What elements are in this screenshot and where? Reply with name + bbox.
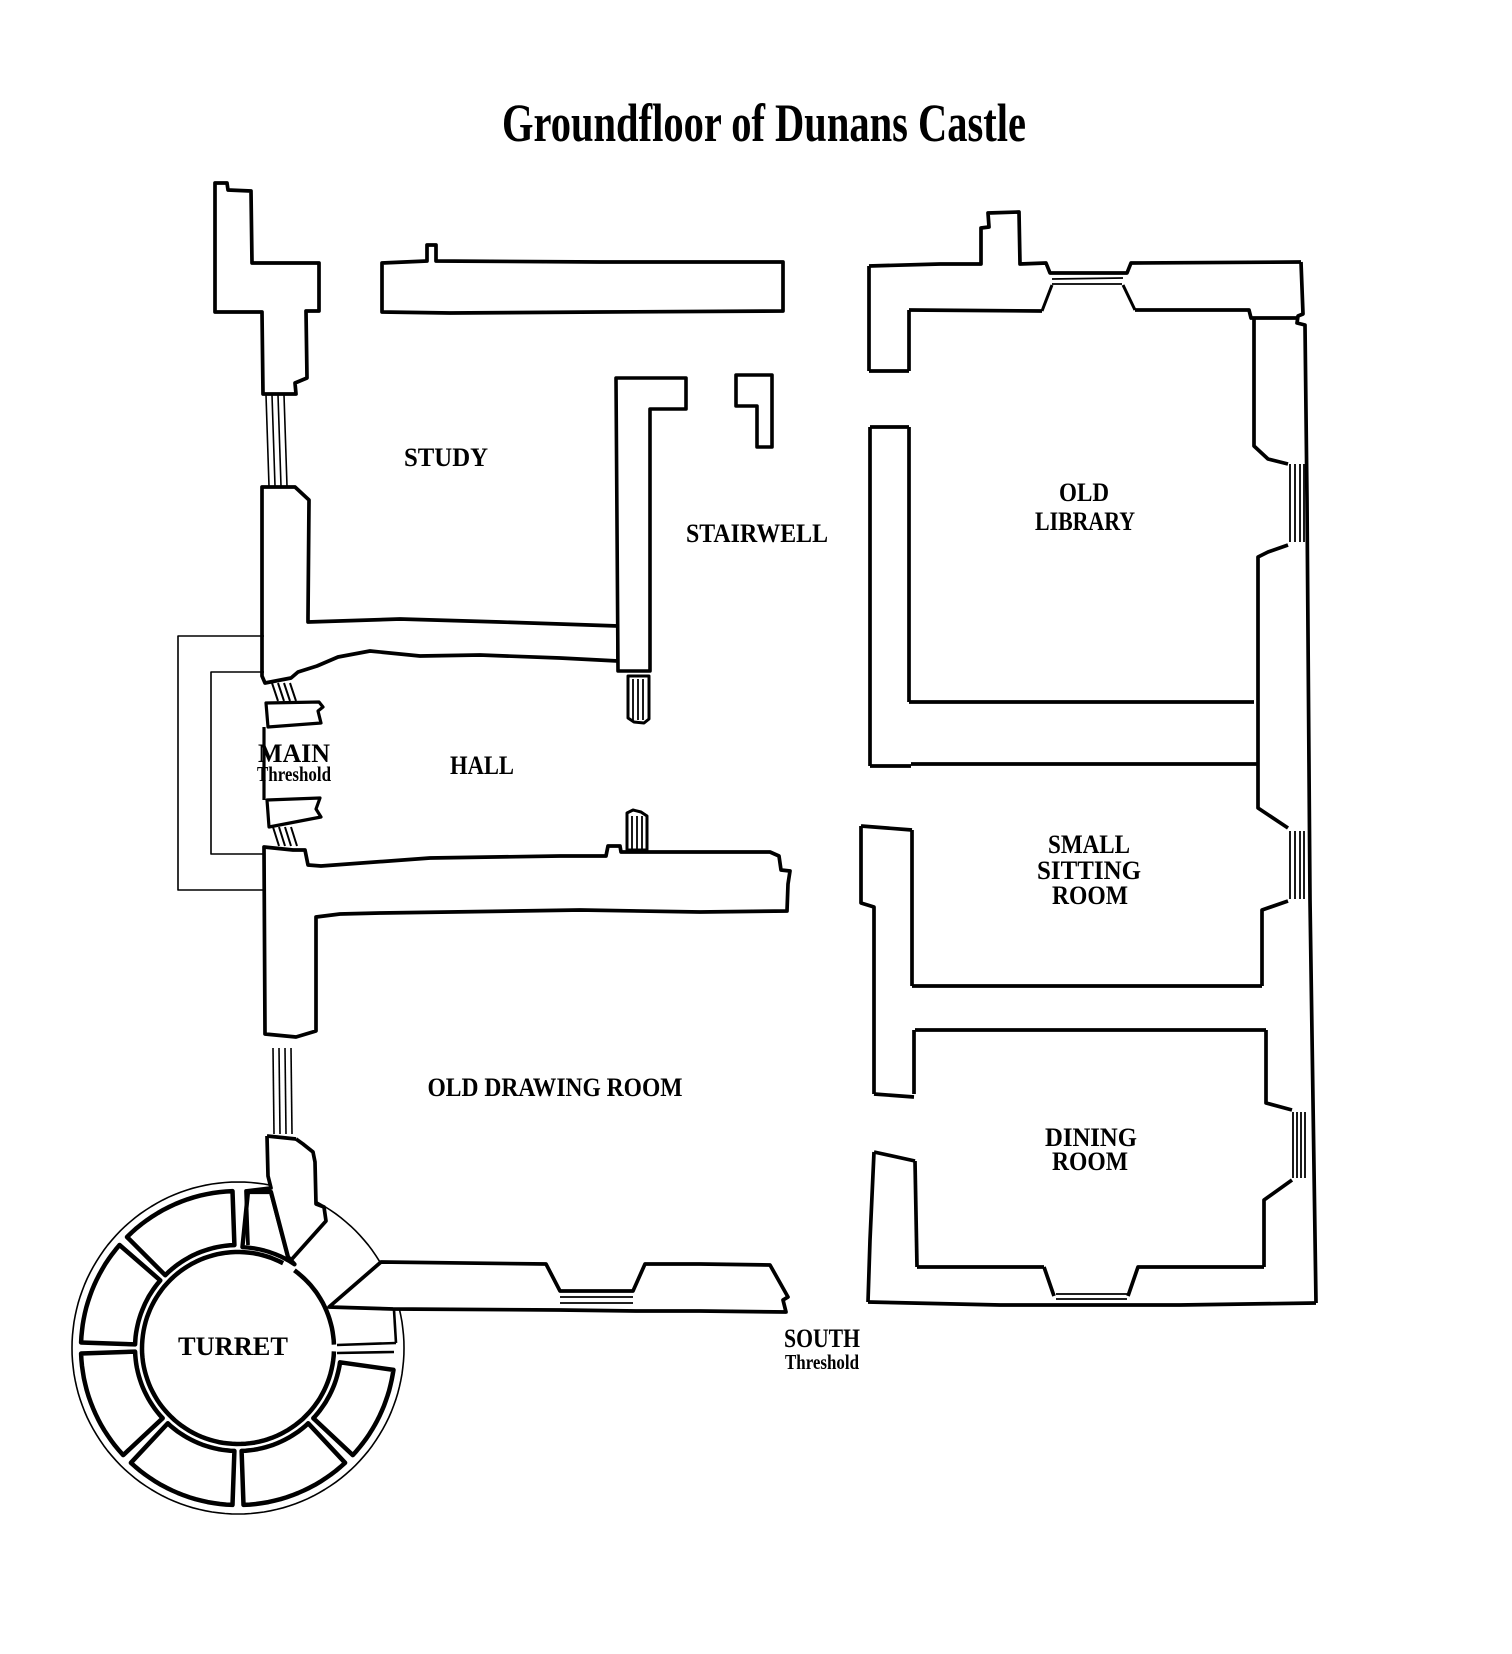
svg-text:STUDY: STUDY — [404, 443, 488, 472]
svg-text:SOUTH: SOUTH — [784, 1324, 860, 1353]
svg-text:Threshold: Threshold — [257, 762, 331, 786]
svg-text:LIBRARY: LIBRARY — [1035, 507, 1135, 536]
svg-text:OLD: OLD — [1059, 478, 1109, 507]
svg-text:TURRET: TURRET — [178, 1332, 288, 1361]
svg-text:Groundfloor of Dunans Castle: Groundfloor of Dunans Castle — [502, 93, 1026, 153]
svg-text:ROOM: ROOM — [1052, 1147, 1128, 1176]
svg-text:OLD DRAWING ROOM: OLD DRAWING ROOM — [428, 1073, 683, 1102]
svg-text:Threshold: Threshold — [785, 1350, 859, 1374]
svg-text:ROOM: ROOM — [1052, 881, 1128, 910]
svg-text:SMALL: SMALL — [1048, 830, 1130, 859]
svg-text:STAIRWELL: STAIRWELL — [686, 519, 828, 548]
svg-text:HALL: HALL — [450, 751, 514, 780]
